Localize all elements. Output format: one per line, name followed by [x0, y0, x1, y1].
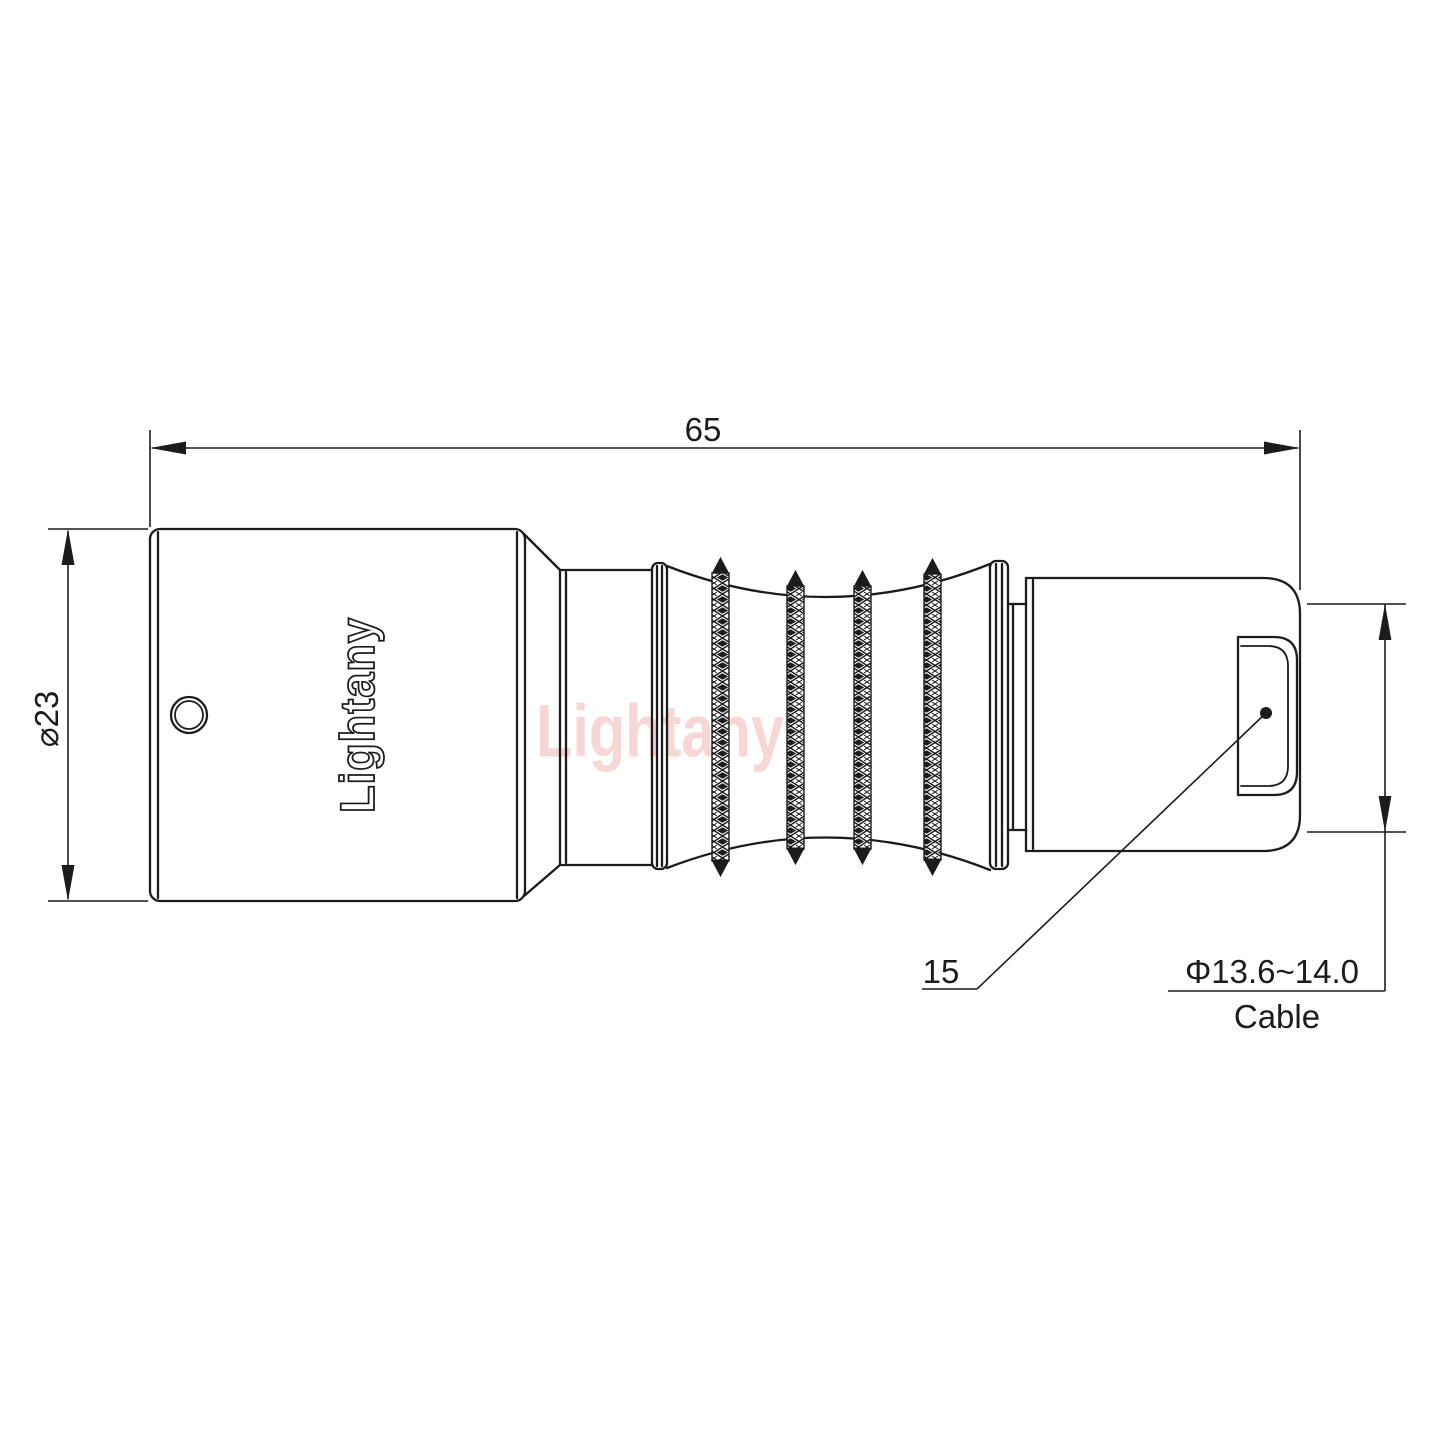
leader-dot [1260, 707, 1272, 719]
knurl-band [787, 571, 804, 864]
body-hole-outer [171, 697, 207, 733]
cable-nut-length-value: 15 [923, 953, 960, 990]
cable-label: Cable [1234, 998, 1320, 1035]
brand-engraving-text: Lightany [332, 617, 385, 813]
arrowhead-left [150, 442, 186, 455]
cable-diameter-value: Φ13.6~14.0 [1185, 953, 1359, 990]
overall-length-value: 65 [685, 411, 722, 448]
watermark-text: Lightany [536, 690, 784, 773]
rear-body [1026, 578, 1300, 851]
arrowhead-top [1379, 604, 1392, 640]
drawing-canvas: Lightany [0, 0, 1440, 1440]
body-diameter-value: ⌀23 [28, 691, 65, 748]
label-15-leader [922, 707, 1272, 989]
arrowhead-bottom [62, 865, 75, 901]
arrowhead-top [62, 529, 75, 565]
knurl-band [712, 558, 729, 876]
knurl-band [924, 559, 941, 875]
connector-dimension-drawing: Lightany [0, 0, 1440, 1440]
arrowhead-right [1264, 442, 1300, 455]
knurl-band [854, 571, 871, 864]
grip-right-flange [990, 561, 1008, 869]
arrowhead-bottom [1379, 796, 1392, 832]
rear-neck [1008, 604, 1026, 830]
body-hole-inner [175, 701, 203, 729]
